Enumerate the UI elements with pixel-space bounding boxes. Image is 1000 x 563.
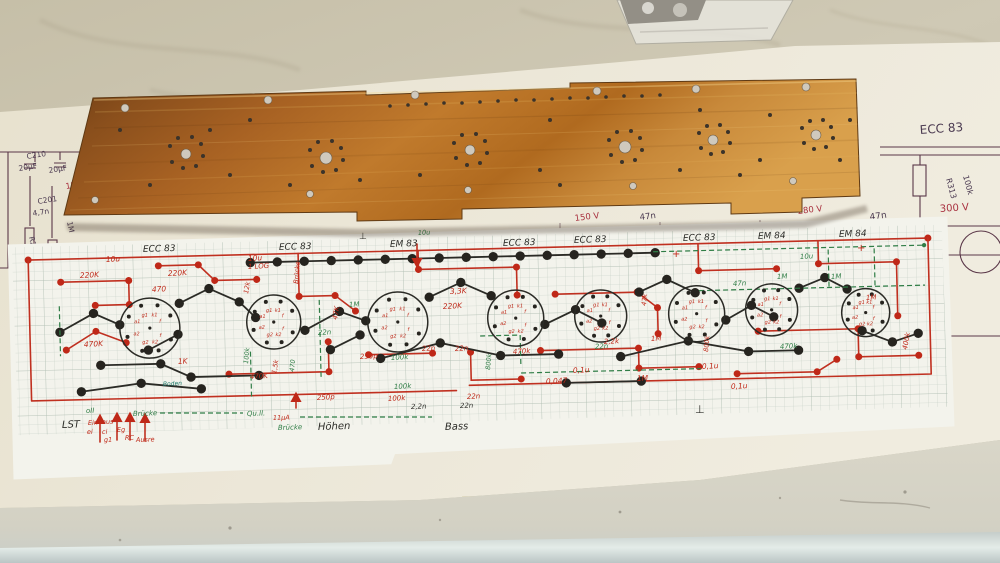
drill-hole <box>824 145 828 149</box>
handwritten-label: ECC 83 <box>143 244 176 255</box>
drill-hole <box>118 128 122 132</box>
handwritten-label: 470k <box>513 347 532 356</box>
drill-hole <box>838 158 842 162</box>
drill-hole <box>310 164 314 168</box>
handwritten-label: ⊥ <box>695 403 705 416</box>
socket-pin-label: a2 <box>381 325 387 331</box>
drill-hole <box>465 187 472 194</box>
socket-pin-label: k1 <box>698 299 704 305</box>
drill-hole <box>181 166 185 170</box>
handwritten-label: 22n <box>467 392 481 401</box>
photo-of-pcb-and-schematic: C21020μFC22020μF150VC2014,7n1MR201R2021,… <box>0 0 1000 563</box>
drill-hole <box>341 158 345 162</box>
socket-pin-label: a2 <box>852 315 858 321</box>
handwritten-label: ECC 83 <box>279 242 312 253</box>
drill-hole <box>615 130 619 134</box>
handwritten-label: Brücke <box>278 423 303 432</box>
drill-hole <box>718 123 722 127</box>
drill-hole <box>228 173 232 177</box>
socket-pin-label: k1 <box>275 308 281 314</box>
drill-hole <box>496 99 500 103</box>
socket-pin-label: k2 <box>602 326 608 332</box>
socket-pin-label: a1 <box>259 314 265 320</box>
handwritten-label: 0,1u <box>702 361 719 371</box>
handwritten-label: 1K <box>178 356 189 366</box>
socket-pin-label: k1 <box>773 296 779 302</box>
handwritten-label: 250p <box>360 352 379 361</box>
drill-hole <box>728 141 732 145</box>
drill-hole <box>678 168 682 172</box>
drill-hole <box>758 158 762 162</box>
drill-hole <box>550 97 554 101</box>
handwritten-label: oII <box>86 407 95 415</box>
handwritten-label: 3,3K <box>450 286 468 296</box>
socket-pin-label: g1 <box>389 307 396 313</box>
drill-hole <box>248 118 252 122</box>
drill-hole <box>697 131 701 135</box>
handwritten-label: Boden <box>163 380 183 388</box>
socket-pin-label: a2 <box>586 319 592 325</box>
drill-hole <box>406 103 410 107</box>
socket-pin-label: a2 <box>757 312 763 318</box>
drill-hole <box>514 98 518 102</box>
drill-hole <box>802 83 810 91</box>
drill-hole <box>454 156 458 160</box>
drill-hole <box>640 94 644 98</box>
handwritten-label: ci <box>102 428 108 436</box>
drill-hole <box>121 104 129 112</box>
socket-pin-label: g2 <box>142 340 149 346</box>
drill-hole <box>658 93 662 97</box>
socket-pin-label: a1 <box>501 310 507 316</box>
handwritten-label: 220K <box>443 301 464 311</box>
drill-hole <box>199 142 203 146</box>
case-shine-spot <box>642 2 654 14</box>
printed-label: 300 V <box>939 202 969 215</box>
handwritten-label: 250p <box>317 393 336 402</box>
handwritten-label: Ausre <box>135 435 155 444</box>
drill-hole <box>358 178 362 182</box>
drill-hole <box>168 144 172 148</box>
handwritten-label: 470 <box>288 359 297 372</box>
handwritten-label: 2,2n <box>411 402 427 411</box>
drill-hole <box>388 104 392 108</box>
handwritten-label: ECC 83 <box>683 233 716 244</box>
drill-hole <box>726 130 730 134</box>
drill-hole <box>620 160 624 164</box>
socket-pin-label: k1 <box>602 302 608 308</box>
socket-pin-label: g2 <box>508 329 515 335</box>
drill-hole <box>478 161 482 165</box>
socket-pin-label: k2 <box>773 319 779 325</box>
handwritten-label: 47k <box>640 293 649 306</box>
socket-pin-label: g2 <box>594 326 601 332</box>
handwritten-label: aus <box>102 418 114 426</box>
drill-hole <box>330 139 334 143</box>
handwritten-label: 22n <box>460 402 474 410</box>
handwritten-label: RC <box>125 434 135 442</box>
drill-hole <box>568 96 572 100</box>
socket-pin-label: a2 <box>259 325 265 331</box>
socket-pin-label: k2 <box>275 332 281 338</box>
handwritten-label: 0,1u <box>731 381 748 391</box>
handwritten-label: LST <box>62 419 81 431</box>
drill-hole <box>622 94 626 98</box>
handwritten-label: 800k <box>484 353 493 370</box>
drill-hole <box>320 152 332 164</box>
socket-pin-label: g2 <box>390 334 397 340</box>
handwritten-label: Eg <box>117 426 126 434</box>
drill-hole <box>538 168 542 172</box>
drill-hole <box>474 132 478 136</box>
socket-pin-label: g1 <box>508 304 515 310</box>
handwritten-label: 100k <box>388 394 407 403</box>
drill-hole <box>790 178 797 185</box>
drill-hole <box>532 98 536 102</box>
drill-hole <box>452 141 456 145</box>
drill-hole <box>698 108 702 112</box>
socket-pin-label: a1 <box>587 308 593 314</box>
handwritten-label: 1 LOG <box>248 262 270 271</box>
drill-hole <box>194 164 198 168</box>
drill-hole <box>483 139 487 143</box>
handwritten-label: 100k <box>391 353 410 362</box>
handwritten-label: 470K <box>250 372 270 381</box>
drill-hole <box>586 96 590 100</box>
drill-hole <box>548 118 552 122</box>
drill-hole <box>708 135 718 145</box>
handwritten-label: 0,047 <box>546 376 568 386</box>
drill-hole <box>321 170 325 174</box>
drill-hole <box>170 160 174 164</box>
drill-hole <box>176 136 180 140</box>
handwritten-label: 22n <box>595 342 609 351</box>
drill-hole <box>181 149 191 159</box>
socket-pin-label: k1 <box>517 303 523 309</box>
handwritten-label: 470K <box>84 339 105 349</box>
drill-hole <box>208 128 212 132</box>
handwritten-label: Ein <box>88 419 98 427</box>
drill-hole <box>411 91 419 99</box>
handwritten-label: 10u <box>106 254 121 264</box>
socket-pin-label: k2 <box>518 329 524 335</box>
drill-hole <box>802 141 806 145</box>
case-shine-spot-2 <box>673 3 687 17</box>
handwritten-label: 100k <box>242 347 251 364</box>
socket-pin-label: k2 <box>400 333 406 339</box>
handwritten-label: 470k <box>780 342 799 351</box>
handwritten-label: 11μA <box>273 413 290 422</box>
socket-pin-label: a1 <box>682 305 688 311</box>
drill-hole <box>460 101 464 105</box>
drill-hole <box>465 145 475 155</box>
socket-pin-label: k1 <box>151 312 157 318</box>
drill-hole <box>709 152 713 156</box>
drill-hole <box>640 148 644 152</box>
handwritten-label: 470 <box>152 284 167 294</box>
handwritten-label: + <box>672 249 680 260</box>
handwritten-label: 1M <box>349 300 360 309</box>
socket-pin-label: a2 <box>133 331 139 337</box>
drill-hole <box>705 124 709 128</box>
drill-hole <box>848 118 852 122</box>
handwritten-label: ECC 83 <box>574 235 607 246</box>
drill-hole <box>831 136 835 140</box>
handwritten-label: 220K <box>168 268 189 278</box>
handwritten-label: 1M <box>831 272 842 281</box>
handwritten-label: Höhen <box>318 421 351 433</box>
handwritten-label: 47n <box>733 279 747 288</box>
drill-hole <box>768 113 772 117</box>
drill-hole <box>800 126 804 130</box>
socket-pin-label: g1 <box>689 299 696 305</box>
handwritten-label: 1M <box>651 334 662 343</box>
socket-pin-label: g1 <box>142 313 149 319</box>
drill-hole <box>593 87 601 95</box>
socket-pin-label: a2 <box>500 321 506 327</box>
drill-hole <box>829 125 833 129</box>
handwritten-label: EM 83 <box>390 239 418 250</box>
drill-hole <box>442 101 446 105</box>
handwritten-label: 1M <box>637 373 649 383</box>
drill-hole <box>558 183 562 187</box>
drill-hole <box>201 154 205 158</box>
handwritten-label: ei <box>87 428 93 436</box>
handwritten-label: Brücke <box>133 409 158 418</box>
drill-hole <box>604 95 608 99</box>
handwritten-label: 0,1u <box>573 365 590 375</box>
socket-pin-label: a1 <box>758 302 764 308</box>
handwritten-label: 22n <box>318 328 332 337</box>
drill-hole <box>619 141 631 153</box>
handwritten-label: Bass <box>445 421 469 433</box>
socket-pin-label: a2 <box>681 317 687 323</box>
handwritten-label: + <box>857 243 865 254</box>
handwritten-label: Qu.ll. <box>247 409 266 418</box>
drill-hole <box>308 148 312 152</box>
handwritten-label: 22n <box>455 344 469 353</box>
drill-hole <box>812 147 816 151</box>
drill-hole <box>148 183 152 187</box>
handwritten-label: 220K <box>80 270 101 280</box>
drill-hole <box>811 130 821 140</box>
socket-pin-label: g1 <box>593 302 600 308</box>
drill-hole <box>699 146 703 150</box>
drill-hole <box>629 129 633 133</box>
socket-pin-label: g1 <box>858 300 865 306</box>
drill-hole <box>190 135 194 139</box>
drill-hole <box>288 183 292 187</box>
handwritten-label: EM 84 <box>839 229 867 240</box>
drill-hole <box>607 138 611 142</box>
socket-pin-label: k2 <box>152 339 158 345</box>
handwritten-label: ECC 83 <box>503 238 536 249</box>
drill-hole <box>808 119 812 123</box>
handwritten-label: 1M <box>866 293 877 302</box>
handwritten-label: EM 84 <box>758 231 786 242</box>
plastic-case <box>617 0 793 44</box>
handwritten-label: 22n <box>422 344 436 353</box>
drill-hole <box>821 118 825 122</box>
socket-pin-label: g2 <box>859 321 866 327</box>
drill-hole <box>307 191 314 198</box>
socket-pin-label: g1 <box>764 296 771 302</box>
drill-hole <box>692 85 700 93</box>
socket-pin-label: k2 <box>867 321 873 327</box>
drill-hole <box>465 163 469 167</box>
photo-canvas: C21020μFC22020μF150VC2014,7n1MR201R2021,… <box>0 0 1000 563</box>
handwritten-label: g1 <box>104 436 113 444</box>
socket-pin-label: g2 <box>689 324 696 330</box>
socket-pin-label: k1 <box>399 306 405 312</box>
drill-hole <box>418 173 422 177</box>
socket-pin-label: a1 <box>134 319 140 325</box>
drill-hole <box>264 96 272 104</box>
socket-pin-label: g2 <box>267 332 274 338</box>
handwritten-label: 800k <box>702 335 711 352</box>
handwritten-label: 100k <box>394 382 413 391</box>
drill-hole <box>738 173 742 177</box>
drill-hole <box>638 136 642 140</box>
drill-hole <box>478 100 482 104</box>
drill-hole <box>316 140 320 144</box>
handwritten-label: 1M <box>777 272 788 281</box>
drill-hole <box>460 133 464 137</box>
drill-hole <box>339 146 343 150</box>
socket-pin-label: g1 <box>266 308 273 314</box>
printed-label: 47n <box>639 211 656 223</box>
socket-pin-label: a1 <box>382 313 388 319</box>
drill-hole <box>334 168 338 172</box>
socket-pin-label: k2 <box>699 324 705 330</box>
handwritten-label: 10u <box>800 252 814 261</box>
drill-hole <box>485 151 489 155</box>
drill-hole <box>609 153 613 157</box>
socket-pin-label: g2 <box>765 320 772 326</box>
drill-hole <box>721 150 725 154</box>
drill-hole <box>630 183 637 190</box>
drill-hole <box>424 102 428 106</box>
drill-hole <box>92 197 99 204</box>
drill-hole <box>633 158 637 162</box>
